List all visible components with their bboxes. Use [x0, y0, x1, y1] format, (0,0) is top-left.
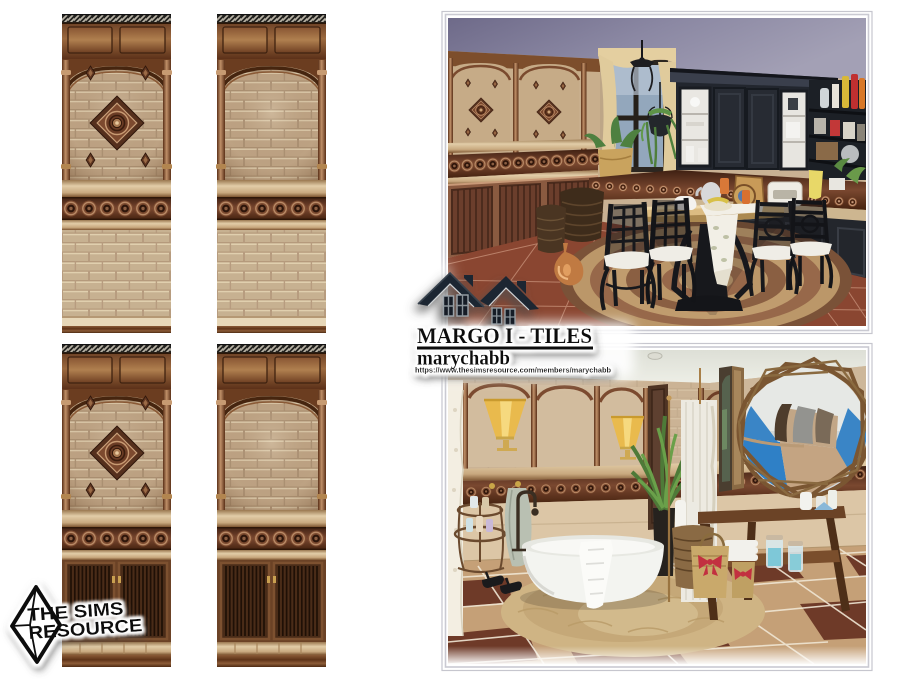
svg-text:https://www.thesimsresource.co: https://www.thesimsresource.com/members/…: [415, 366, 611, 375]
svg-text:MARGO I - TILES: MARGO I - TILES: [417, 323, 592, 348]
